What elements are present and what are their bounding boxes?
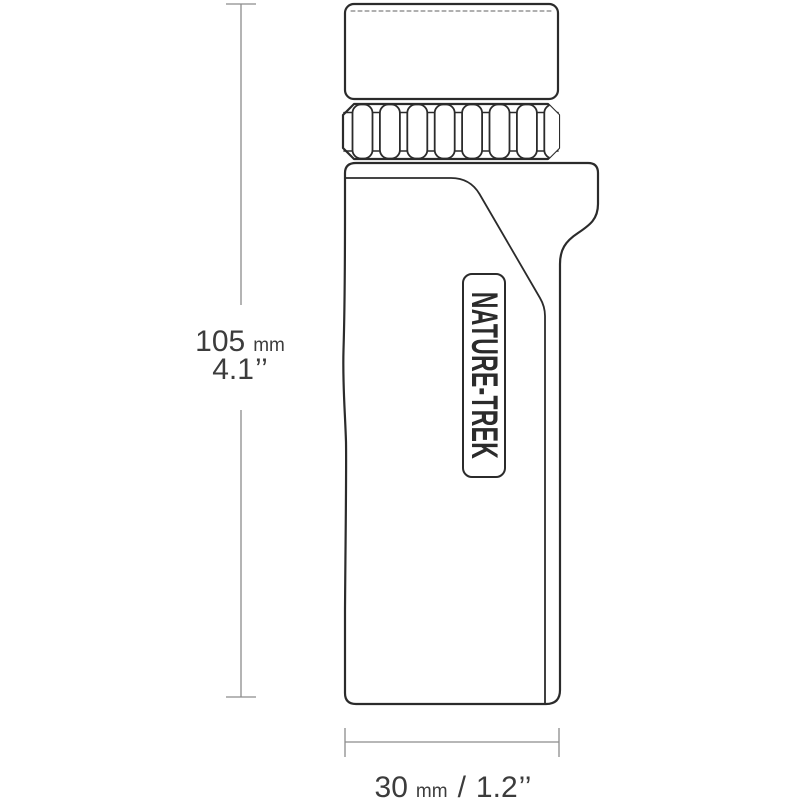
focus-ring-rib bbox=[353, 105, 373, 159]
brand-label-text: NATURE-TREK bbox=[463, 292, 505, 459]
focus-ring-rib bbox=[380, 105, 400, 159]
width-dimension-label: 30mm/1.2’’ bbox=[375, 771, 532, 800]
diagram-canvas: NATURE-TREK 105mm 4.1’’ 30mm/1.2’’ bbox=[0, 0, 800, 800]
height-value-inch: 4.1 bbox=[212, 353, 254, 386]
focus-ring-rib bbox=[544, 105, 564, 159]
width-unit-mm: mm bbox=[416, 781, 448, 800]
focus-ring-rib bbox=[462, 105, 482, 159]
width-separator: / bbox=[458, 771, 467, 800]
width-value-mm: 30 bbox=[375, 771, 408, 800]
height-dimension-label-inch: 4.1’’ bbox=[212, 353, 268, 386]
height-unit-inch: ’’ bbox=[255, 353, 268, 386]
monocular-drawing: NATURE-TREK bbox=[343, 4, 598, 704]
focus-ring-rib bbox=[517, 105, 537, 159]
focus-ring bbox=[343, 104, 564, 159]
width-dimension-line bbox=[345, 728, 559, 757]
focus-ring-rib bbox=[407, 105, 427, 159]
focus-ring-rib bbox=[435, 105, 455, 159]
eyepiece-cup bbox=[345, 4, 558, 99]
focus-ring-rib bbox=[490, 105, 510, 159]
width-value-inch: 1.2 bbox=[476, 771, 518, 800]
monocular-dimension-diagram: NATURE-TREK 105mm 4.1’’ 30mm/1.2’’ bbox=[0, 0, 800, 800]
width-unit-inch: ’’ bbox=[519, 771, 532, 800]
